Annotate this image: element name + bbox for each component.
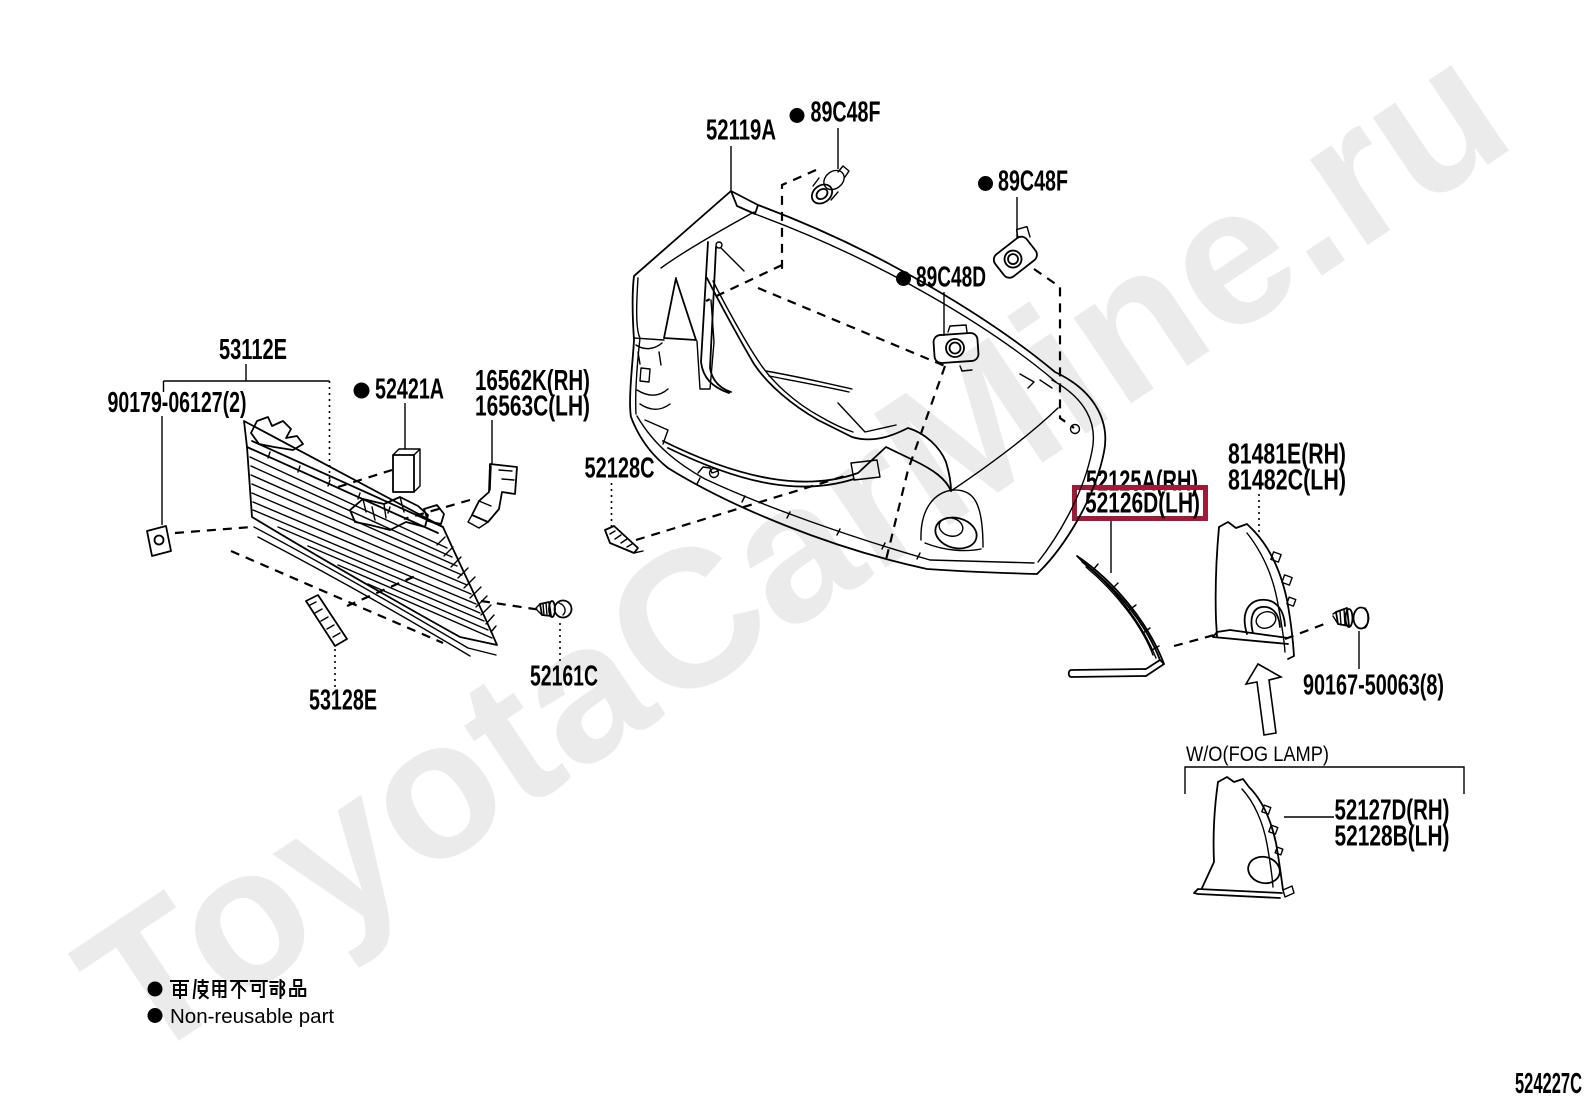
svg-text:53128E: 53128E bbox=[309, 685, 377, 717]
svg-text:90167-50063(8): 90167-50063(8) bbox=[1303, 670, 1444, 702]
svg-text:Non-reusable part: Non-reusable part bbox=[170, 1005, 334, 1028]
svg-text:52128C: 52128C bbox=[585, 453, 655, 485]
svg-text:52161C: 52161C bbox=[530, 661, 598, 693]
svg-text:52128B(LH): 52128B(LH) bbox=[1335, 821, 1450, 853]
svg-text:16563C(LH): 16563C(LH) bbox=[475, 391, 590, 423]
svg-text:52126D(LH): 52126D(LH) bbox=[1085, 488, 1200, 520]
svg-text:90179-06127(2): 90179-06127(2) bbox=[108, 387, 247, 419]
svg-text:524227C: 524227C bbox=[1515, 1068, 1582, 1099]
svg-text:W/O(FOG LAMP): W/O(FOG LAMP) bbox=[1186, 743, 1329, 766]
svg-text:53112E: 53112E bbox=[219, 334, 287, 366]
svg-text:81482C(LH): 81482C(LH) bbox=[1228, 465, 1346, 497]
svg-text:89C48F: 89C48F bbox=[811, 97, 881, 129]
svg-text:52119A: 52119A bbox=[706, 115, 776, 147]
svg-text:89C48D: 89C48D bbox=[916, 262, 986, 294]
svg-text:52421A: 52421A bbox=[375, 374, 444, 406]
svg-text:89C48F: 89C48F bbox=[998, 166, 1068, 198]
